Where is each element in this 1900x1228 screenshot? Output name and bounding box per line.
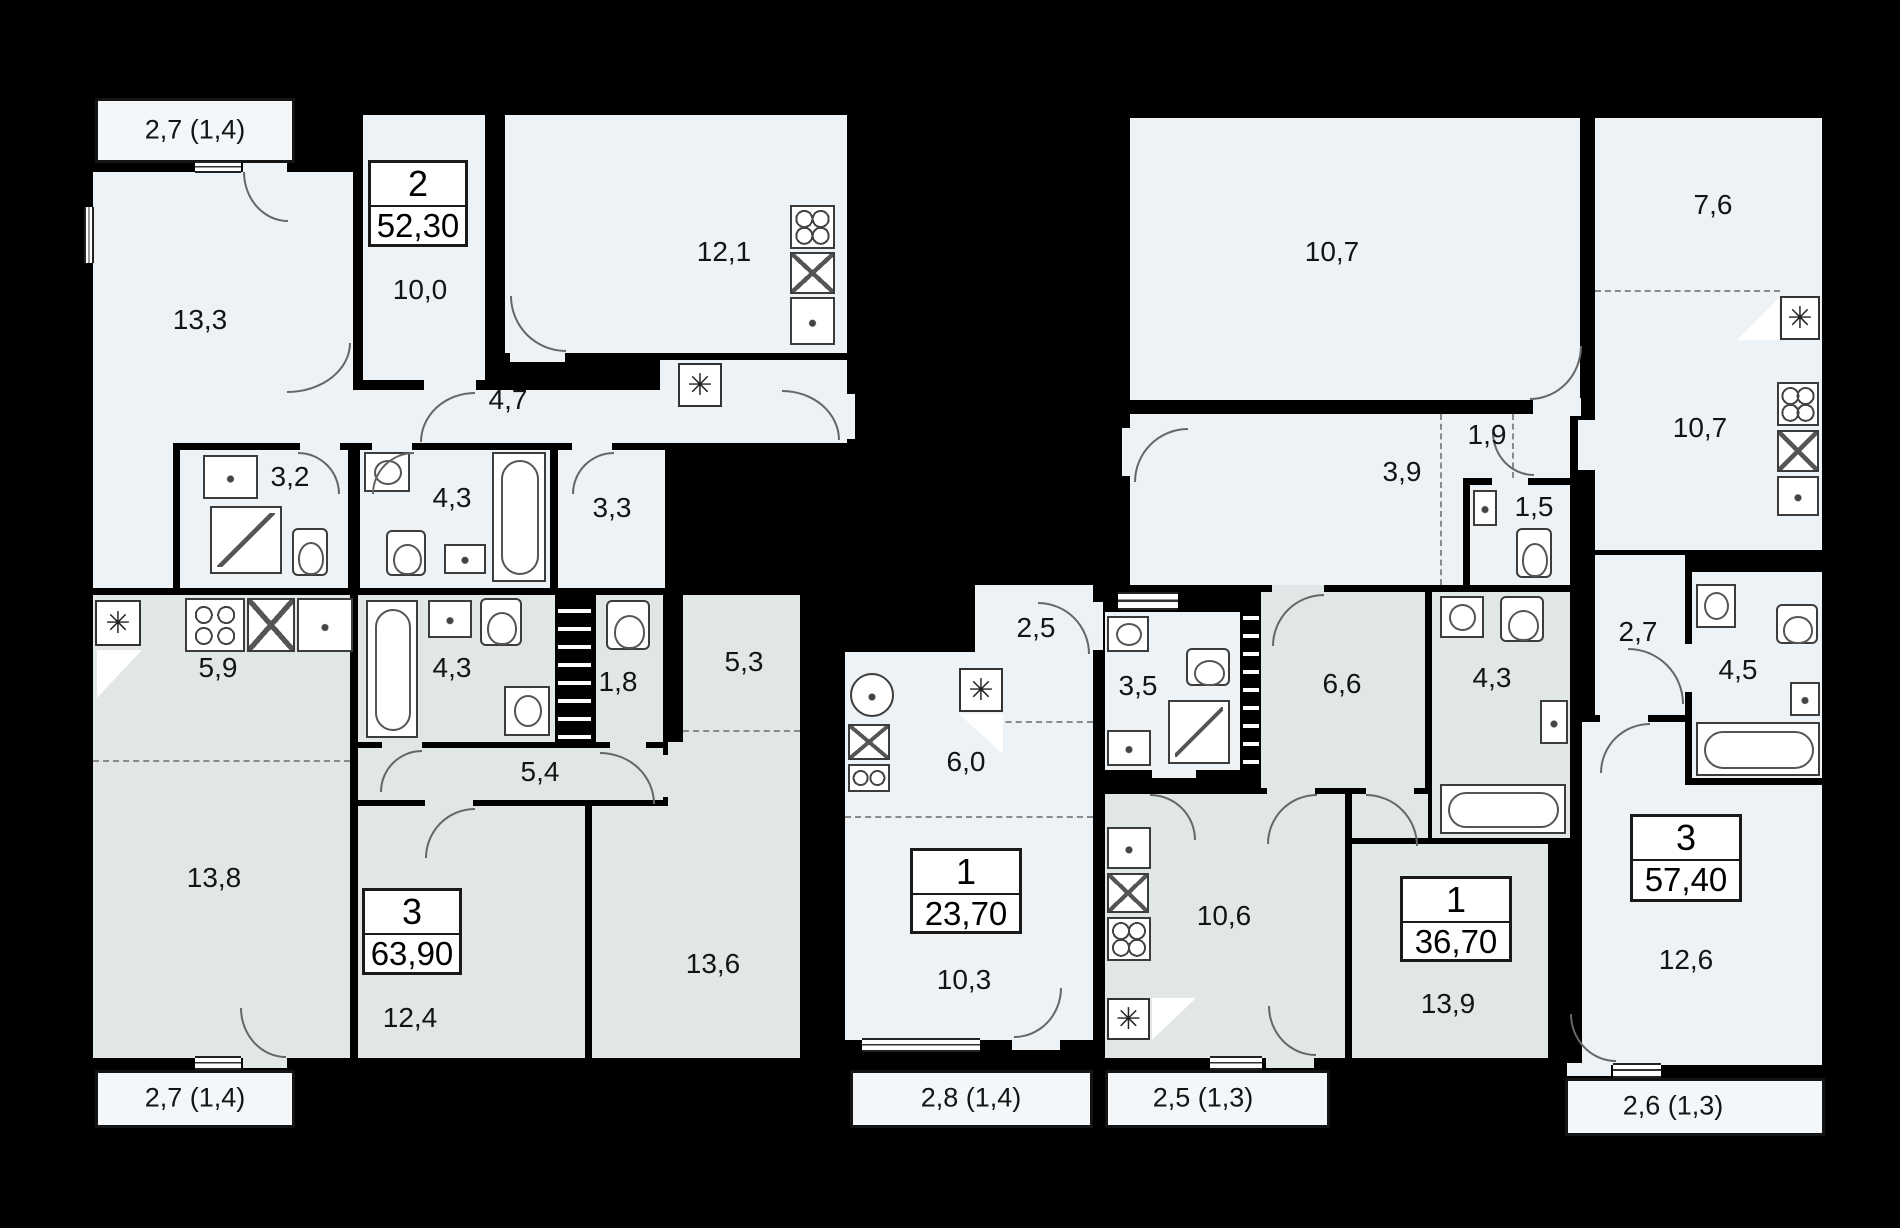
bathtub-icon	[492, 452, 546, 582]
apartment-d-info-box: 1 36,70	[1400, 876, 1512, 962]
room-label: 5,4	[521, 756, 560, 788]
bathtub-icon	[366, 600, 418, 738]
room-label: 2,5	[1017, 612, 1056, 644]
room-label: 12,4	[383, 1002, 438, 1034]
toilet-icon	[386, 530, 426, 576]
rooms-count: 3	[1633, 817, 1739, 861]
window	[195, 1056, 241, 1070]
kitchen-sink-icon	[1777, 430, 1819, 472]
window	[862, 1038, 980, 1052]
window	[84, 207, 94, 263]
door-opening	[610, 740, 646, 750]
door-opening	[1266, 1056, 1314, 1068]
window	[1118, 592, 1178, 610]
room-label: 3,3	[593, 492, 632, 524]
total-area: 52,30	[371, 207, 465, 245]
kitchen-sink-icon	[848, 724, 890, 760]
stove-icon	[185, 598, 245, 652]
room-label: 7,6	[1694, 189, 1733, 221]
room-label: 5,3	[725, 646, 764, 678]
window	[195, 161, 241, 173]
stove-icon	[1107, 917, 1151, 961]
room-label: 6,6	[1323, 668, 1362, 700]
vent-icon: ✳	[1780, 296, 1820, 340]
room-label: 4,5	[1719, 654, 1758, 686]
window	[1210, 1056, 1262, 1070]
shaft-icon	[558, 595, 591, 742]
rooms-count: 1	[1403, 879, 1509, 923]
sink-icon	[1107, 827, 1151, 869]
door-opening	[243, 1056, 287, 1068]
apartment-b-room-13-6-top	[668, 742, 800, 806]
apartment-b-room-13-6	[592, 806, 800, 1058]
door-opening	[1683, 644, 1693, 692]
room-label: 3,9	[1383, 456, 1422, 488]
door-opening	[1492, 476, 1528, 486]
door-opening	[1012, 1038, 1060, 1050]
room-label: 4,3	[433, 652, 472, 684]
apartment-a-room-10-0	[363, 115, 485, 380]
sink-icon	[1540, 700, 1568, 744]
door-opening	[1122, 428, 1134, 476]
total-area: 36,70	[1403, 923, 1509, 961]
door-opening	[350, 394, 364, 439]
room-label: 1,5	[1515, 491, 1554, 523]
washing-machine-icon	[1107, 616, 1149, 652]
rooms-count: 2	[371, 163, 465, 207]
rooms-count: 3	[365, 891, 459, 935]
room-label: 1,8	[599, 666, 638, 698]
room-label: 10,3	[937, 964, 992, 996]
zone-divider	[683, 730, 800, 732]
room-label: 10,0	[393, 274, 448, 306]
door-opening	[843, 394, 855, 439]
toilet-icon	[606, 600, 650, 650]
room-label: 4,7	[489, 384, 528, 416]
room-label: 10,7	[1305, 236, 1360, 268]
stove-icon	[848, 764, 890, 792]
washing-machine-icon	[504, 686, 550, 736]
room-label: 13,3	[173, 304, 228, 336]
room-label: 10,7	[1673, 412, 1728, 444]
toilet-icon	[292, 528, 328, 576]
floor-plan: ✳ 2,7 (1,4) 13,3 10,0 12,1 4,7 3,2 4,3 3…	[0, 0, 1900, 1228]
kitchen-sink-icon	[247, 598, 295, 652]
washing-machine-icon	[1696, 584, 1736, 628]
apartment-b-info-box: 3 63,90	[362, 888, 462, 975]
washing-machine-icon	[1440, 596, 1484, 638]
apartment-b-room-13-8	[93, 761, 350, 1058]
toilet-icon	[1186, 648, 1230, 686]
apartment-e-info-box: 3 57,40	[1630, 814, 1742, 902]
counter-icon	[790, 297, 835, 345]
room-label: 12,6	[1659, 944, 1714, 976]
room-label: 3,2	[271, 461, 310, 493]
door-opening	[1152, 768, 1196, 778]
room-label: 6,0	[947, 746, 986, 778]
room-label: 13,8	[187, 862, 242, 894]
door-arc	[1570, 1014, 1616, 1062]
sink-icon	[850, 673, 894, 717]
room-label: 3,5	[1119, 670, 1158, 702]
total-area: 63,90	[365, 935, 459, 973]
kitchen-sink-icon	[790, 252, 835, 294]
room-label: 2,7	[1619, 616, 1658, 648]
shower-icon	[1168, 700, 1230, 764]
door-opening	[1578, 420, 1598, 470]
apartment-c-info-box: 1 23,70	[910, 848, 1022, 934]
room-label: 13,6	[686, 948, 741, 980]
total-area: 23,70	[913, 895, 1019, 933]
window	[1613, 1063, 1661, 1078]
balcony-label: 2,5 (1,3)	[1153, 1083, 1254, 1114]
toilet-icon	[1516, 528, 1552, 578]
door-opening	[1567, 1063, 1611, 1076]
room-label: 5,9	[199, 652, 238, 684]
sink-icon	[428, 600, 472, 638]
toilet-icon	[480, 598, 522, 646]
bathtub-icon	[1696, 722, 1820, 776]
zone-divider	[1595, 290, 1780, 292]
vent-icon: ✳	[678, 363, 722, 407]
toilet-icon	[1500, 596, 1544, 642]
room-label: 13,9	[1421, 988, 1476, 1020]
door-opening	[424, 378, 476, 392]
shaft-icon	[1243, 602, 1259, 770]
balcony-label: 2,8 (1,4)	[921, 1083, 1022, 1114]
vent-icon: ✳	[95, 600, 141, 646]
stove-icon	[790, 205, 835, 249]
bathtub-icon	[1440, 784, 1566, 834]
balcony-label: 2,7 (1,4)	[145, 1083, 246, 1114]
room-label: 1,9	[1468, 419, 1507, 451]
counter-icon	[1777, 476, 1819, 516]
door-opening	[1533, 398, 1581, 416]
balcony-label: 2,7 (1,4)	[145, 115, 246, 146]
shower-icon	[210, 506, 282, 574]
door-opening	[510, 350, 565, 362]
room-label: 4,3	[433, 482, 472, 514]
door-opening	[372, 442, 412, 452]
total-area: 57,40	[1633, 861, 1739, 899]
toilet-icon	[1776, 604, 1818, 644]
door-opening	[382, 740, 422, 750]
door-opening	[425, 798, 473, 808]
sink-icon	[1473, 490, 1497, 526]
door-opening	[300, 442, 340, 452]
sink-icon	[1790, 682, 1820, 716]
vent-icon: ✳	[1107, 998, 1150, 1040]
vent-icon: ✳	[959, 668, 1003, 712]
sink-icon	[1107, 730, 1151, 766]
room-label: 4,3	[1473, 662, 1512, 694]
room-label: 10,6	[1197, 900, 1252, 932]
rooms-count: 1	[913, 851, 1019, 895]
door-opening	[572, 442, 612, 452]
zone-divider	[845, 816, 1093, 818]
kitchen-sink-icon	[1107, 873, 1149, 913]
room-label: 12,1	[697, 236, 752, 268]
door-opening	[663, 755, 671, 797]
balcony-label: 2,6 (1,3)	[1623, 1091, 1724, 1122]
zone-divider	[93, 760, 350, 762]
zone-divider	[1440, 414, 1442, 585]
apartment-a-info-box: 2 52,30	[368, 160, 468, 247]
door-opening	[1091, 602, 1103, 650]
counter-icon	[297, 598, 353, 652]
sink-icon	[444, 544, 486, 574]
stove-icon	[1777, 382, 1819, 426]
sink-icon	[203, 455, 258, 499]
